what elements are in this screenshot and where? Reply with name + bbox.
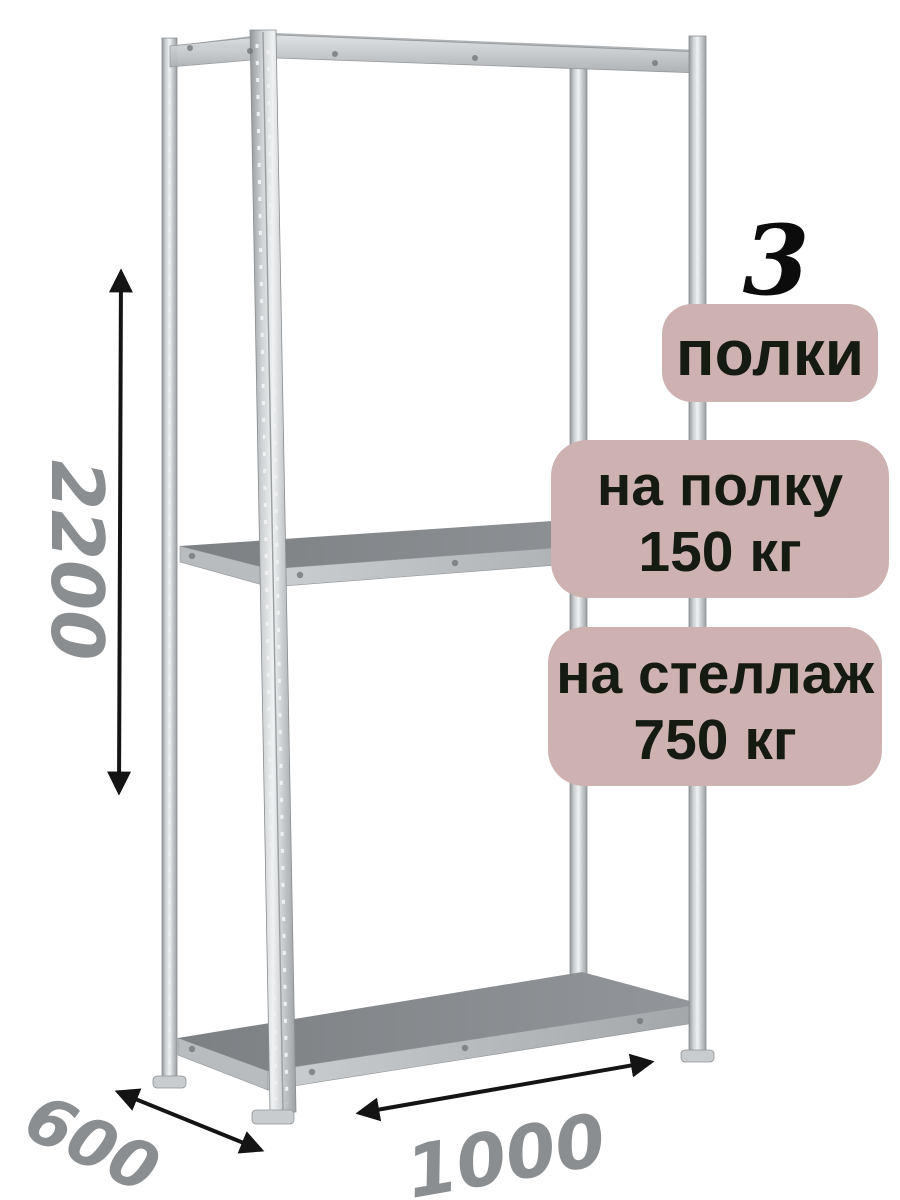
product-image-shelving-rack: 2200 600 1000 3 полки на полку 150 кг на… [0,0,900,1200]
back-left-foot [153,1076,186,1088]
per-rack-load-badge: на стеллаж 750 кг [548,627,882,786]
per-rack-load-line2: 750 кг [633,708,796,774]
bottom-shelf [178,972,701,1090]
depth-dimension: 600 [13,1079,261,1200]
height-dimension: 2200 [35,272,121,792]
per-shelf-load-line2: 150 кг [638,520,801,586]
top-front-beam [276,35,700,73]
per-rack-load-line1: на стеллаж [556,642,874,708]
shelf-count-label: полки [676,316,864,390]
front-right-foot [681,1050,714,1062]
shelf-count-badge: полки [662,304,878,402]
depth-dimension-label: 600 [13,1079,171,1200]
shelf-count-number: 3 [711,213,841,309]
width-dimension: 1000 [359,1062,651,1200]
back-left-post [162,38,177,1082]
width-dimension-label: 1000 [400,1097,612,1200]
shelving-rack-illustration: 2200 600 1000 [0,0,900,1200]
per-shelf-load-badge: на полку 150 кг [551,440,889,598]
per-shelf-load-line1: на полку [597,454,843,520]
height-dimension-label: 2200 [35,460,119,660]
width-dimension-arrow [359,1062,651,1113]
front-left-foot [252,1110,294,1124]
